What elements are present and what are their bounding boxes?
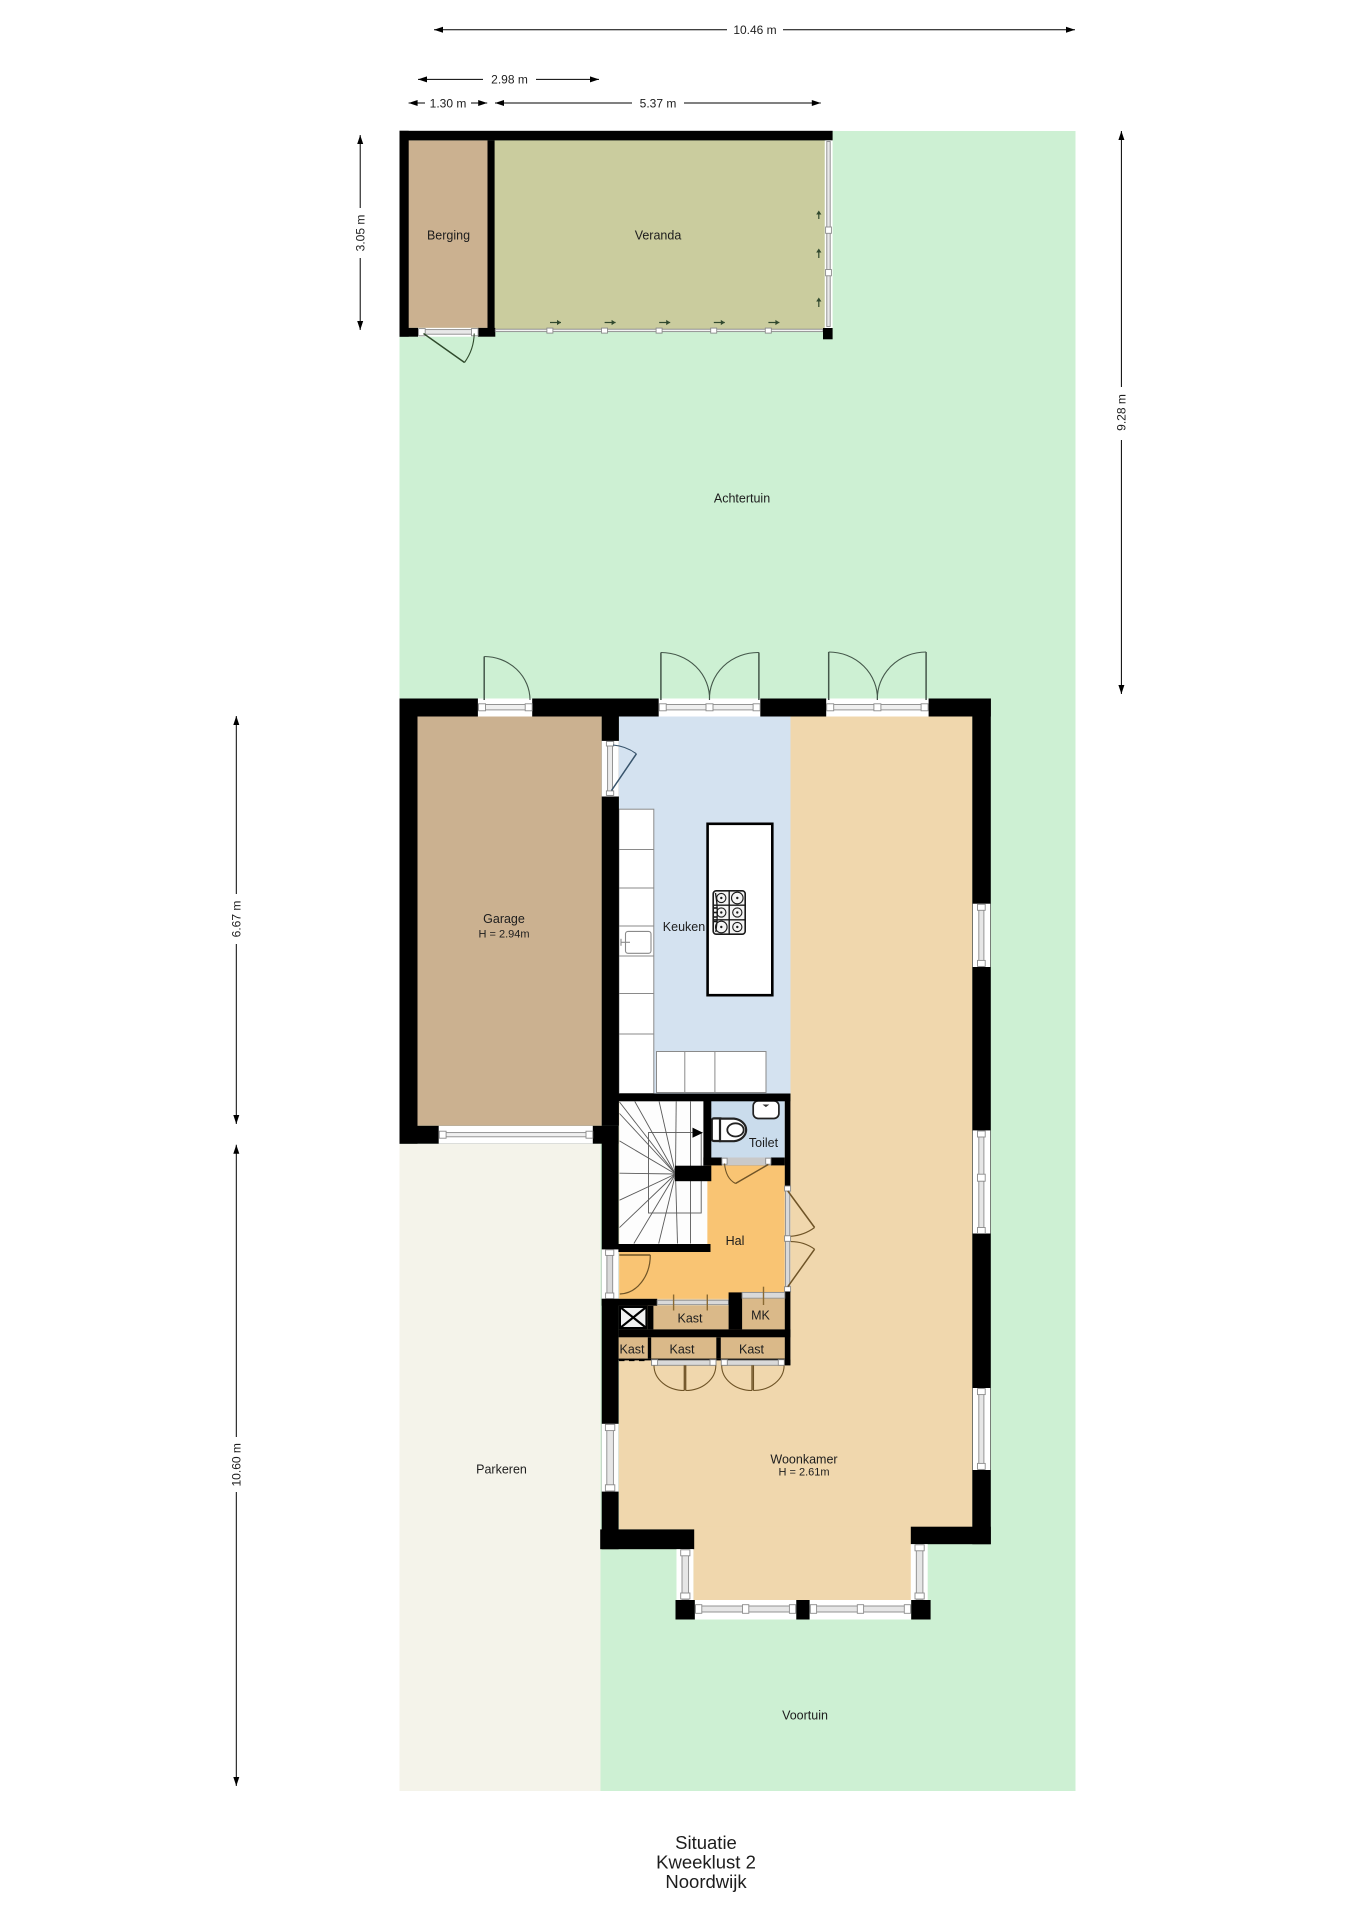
svg-text:5.37 m: 5.37 m bbox=[640, 96, 677, 110]
svg-text:6.67 m: 6.67 m bbox=[230, 901, 244, 938]
svg-text:Berging: Berging bbox=[427, 229, 470, 243]
svg-text:Garage: Garage bbox=[483, 912, 525, 926]
svg-text:Veranda: Veranda bbox=[635, 229, 682, 243]
svg-text:Woonkamer: Woonkamer bbox=[770, 1453, 837, 1467]
svg-text:H = 2.61m: H = 2.61m bbox=[778, 1467, 829, 1479]
svg-text:MK: MK bbox=[751, 1309, 770, 1323]
svg-text:Achtertuin: Achtertuin bbox=[714, 492, 770, 506]
svg-text:Noordwijk: Noordwijk bbox=[665, 1871, 747, 1892]
svg-text:Keuken: Keuken bbox=[663, 920, 705, 934]
svg-text:Kast: Kast bbox=[669, 1343, 695, 1357]
svg-text:Kast: Kast bbox=[677, 1312, 703, 1326]
svg-text:Parkeren: Parkeren bbox=[476, 1463, 527, 1477]
svg-text:Toilet: Toilet bbox=[749, 1136, 779, 1150]
svg-text:2.98 m: 2.98 m bbox=[491, 73, 528, 87]
svg-text:3.05 m: 3.05 m bbox=[353, 215, 367, 252]
svg-text:Kast: Kast bbox=[739, 1343, 765, 1357]
svg-text:H = 2.94m: H = 2.94m bbox=[478, 929, 529, 941]
svg-text:1.30 m: 1.30 m bbox=[430, 96, 467, 110]
svg-text:Kweeklust 2: Kweeklust 2 bbox=[656, 1852, 756, 1873]
svg-text:9.28 m: 9.28 m bbox=[1115, 394, 1129, 431]
svg-text:Hal: Hal bbox=[726, 1234, 745, 1248]
svg-text:10.60 m: 10.60 m bbox=[229, 1443, 243, 1486]
svg-text:Kast: Kast bbox=[619, 1343, 645, 1357]
svg-text:10.46 m: 10.46 m bbox=[733, 23, 776, 37]
svg-text:Voortuin: Voortuin bbox=[782, 1709, 828, 1723]
svg-text:Situatie: Situatie bbox=[675, 1832, 737, 1853]
